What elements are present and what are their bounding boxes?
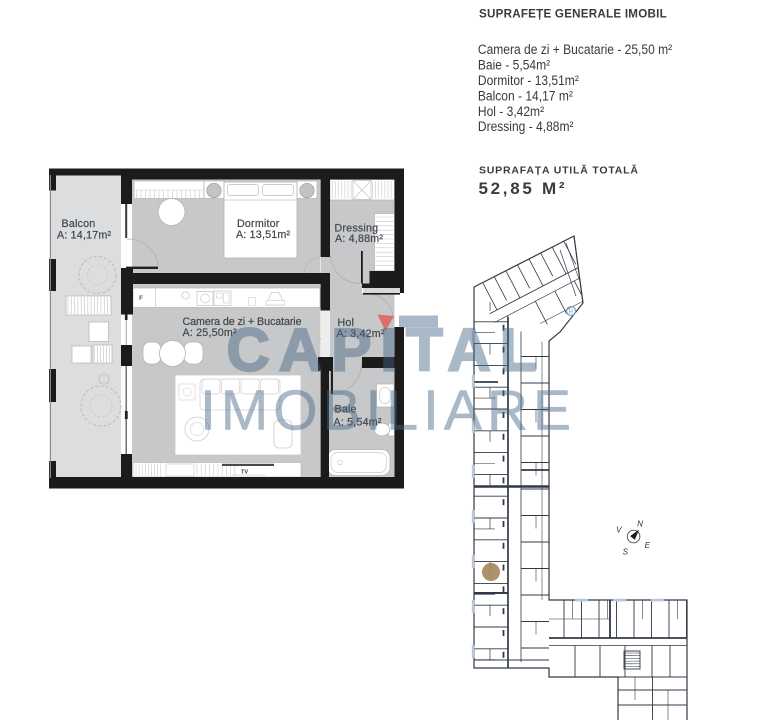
svg-text:Balcon: Balcon xyxy=(62,218,96,230)
svg-text:Hol - 3,42m²: Hol - 3,42m² xyxy=(478,103,545,119)
svg-text:H: H xyxy=(569,309,573,315)
svg-text:A: 13,51m²: A: 13,51m² xyxy=(236,229,291,241)
svg-text:E: E xyxy=(645,541,651,550)
svg-text:A: 14,17m²: A: 14,17m² xyxy=(57,229,112,241)
svg-text:Dormitor - 13,51m²: Dormitor - 13,51m² xyxy=(478,72,580,88)
svg-text:SUPRAFAȚA UTILĂ TOTALĂ: SUPRAFAȚA UTILĂ TOTALĂ xyxy=(479,164,639,177)
svg-text:S: S xyxy=(623,548,629,557)
svg-text:Camera de zi + Bucatarie - 25,: Camera de zi + Bucatarie - 25,50 m² xyxy=(478,41,673,57)
svg-text:TV: TV xyxy=(241,470,248,476)
svg-text:Baie - 5,54m²: Baie - 5,54m² xyxy=(478,57,551,73)
svg-text:N: N xyxy=(637,520,643,529)
svg-text:A: 4,88m²: A: 4,88m² xyxy=(335,233,383,245)
svg-text:Balcon - 14,17 m²: Balcon - 14,17 m² xyxy=(478,87,574,103)
svg-text:V: V xyxy=(616,526,622,535)
svg-text:IMOBILIARE: IMOBILIARE xyxy=(200,379,571,443)
svg-text:SUPRAFEȚE GENERALE IMOBIL: SUPRAFEȚE GENERALE IMOBIL xyxy=(479,8,667,21)
svg-text:F: F xyxy=(139,295,143,302)
svg-text:52,85 M²: 52,85 M² xyxy=(479,179,568,198)
svg-text:Dressing - 4,88m²: Dressing - 4,88m² xyxy=(478,118,574,134)
